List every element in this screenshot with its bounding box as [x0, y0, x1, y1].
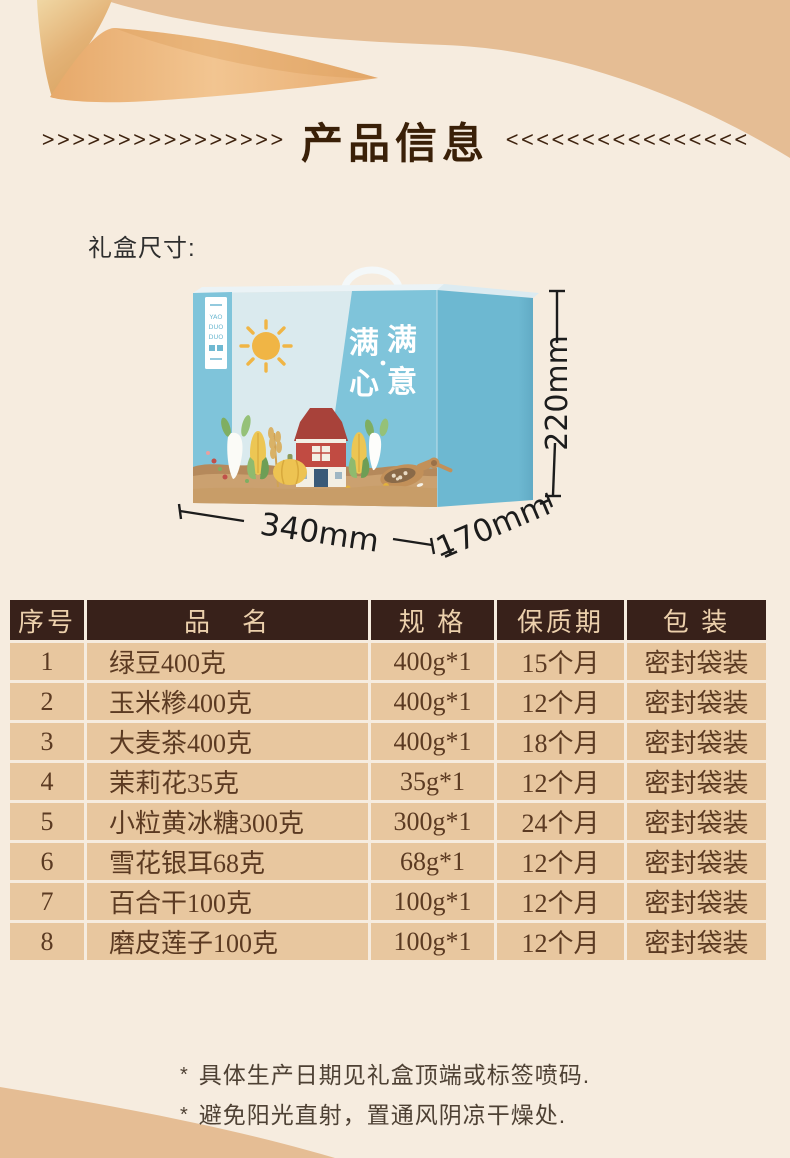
- column-header-no: 序号: [10, 600, 84, 640]
- cell-no: 5: [10, 803, 84, 840]
- cell-packing: 密封袋装: [624, 843, 766, 880]
- table-row: 1 绿豆400克 400g*1 15个月 密封袋装: [10, 643, 766, 680]
- table-header-row: 序号 品 名 规 格 保质期 包 装: [10, 600, 766, 640]
- cell-spec: 68g*1: [368, 843, 494, 880]
- cell-no: 6: [10, 843, 84, 880]
- svg-text:意: 意: [387, 365, 417, 400]
- cell-shelf-life: 12个月: [494, 683, 624, 720]
- product-table: 序号 品 名 规 格 保质期 包 装 1 绿豆400克 400g*1 15个月 …: [10, 597, 766, 963]
- cell-no: 4: [10, 763, 84, 800]
- page-title: 产品信息: [301, 110, 489, 171]
- cell-no: 2: [10, 683, 84, 720]
- svg-text:满: 满: [387, 323, 417, 358]
- cell-name: 玉米糁400克: [84, 683, 368, 720]
- cell-no: 1: [10, 643, 84, 680]
- table-row: 3 大麦茶400克 400g*1 18个月 密封袋装: [10, 723, 766, 760]
- footnote-text: 避免阳光直射，置通风阴凉干燥处.: [199, 1102, 566, 1128]
- cell-name: 百合干100克: [84, 883, 368, 920]
- cell-packing: 密封袋装: [624, 643, 766, 680]
- table-row: 7 百合干100克 100g*1 12个月 密封袋装: [10, 883, 766, 920]
- cell-shelf-life: 24个月: [494, 803, 624, 840]
- cell-spec: 400g*1: [368, 683, 494, 720]
- cell-shelf-life: 12个月: [494, 883, 624, 920]
- cell-shelf-life: 12个月: [494, 923, 624, 960]
- section-title-row: >>>>>>>>>>>>>>>> 产品信息 <<<<<<<<<<<<<<<<: [0, 110, 790, 170]
- cell-spec: 35g*1: [368, 763, 494, 800]
- cell-name: 大麦茶400克: [84, 723, 368, 760]
- column-header-spec: 规 格: [368, 600, 494, 640]
- cell-spec: 100g*1: [368, 883, 494, 920]
- cell-packing: 密封袋装: [624, 923, 766, 960]
- cell-spec: 400g*1: [368, 643, 494, 680]
- footnote-line: *具体生产日期见礼盒顶端或标签喷码.: [180, 1055, 590, 1095]
- dimension-height-label: 220mm: [540, 335, 575, 451]
- asterisk-marker: *: [180, 1055, 189, 1095]
- dimension-line-width: 340mm: [179, 504, 434, 560]
- cell-shelf-life: 15个月: [494, 643, 624, 680]
- brand-strip-label: YAO DUO DUO: [205, 297, 227, 369]
- cell-packing: 密封袋装: [624, 723, 766, 760]
- cell-packing: 密封袋装: [624, 883, 766, 920]
- footnotes: *具体生产日期见礼盒顶端或标签喷码. *避免阳光直射，置通风阴凉干燥处.: [180, 1055, 590, 1135]
- cell-name: 茉莉花35克: [84, 763, 368, 800]
- cell-shelf-life: 18个月: [494, 723, 624, 760]
- table-row: 5 小粒黄冰糖300克 300g*1 24个月 密封袋装: [10, 803, 766, 840]
- right-chevrons-icon: <<<<<<<<<<<<<<<<: [505, 128, 749, 152]
- footnote-line: *避免阳光直射，置通风阴凉干燥处.: [180, 1095, 590, 1135]
- cell-no: 8: [10, 923, 84, 960]
- table-row: 2 玉米糁400克 400g*1 12个月 密封袋装: [10, 683, 766, 720]
- cell-packing: 密封袋装: [624, 763, 766, 800]
- column-header-packing: 包 装: [624, 600, 766, 640]
- cell-spec: 100g*1: [368, 923, 494, 960]
- gift-box-illustration: YAO DUO DUO 满 满 心 意: [150, 255, 620, 585]
- svg-text:DUO: DUO: [209, 323, 224, 331]
- cell-packing: 密封袋装: [624, 803, 766, 840]
- sun-icon: [241, 321, 291, 371]
- dimension-line-height: 220mm: [540, 291, 575, 496]
- cell-name: 小粒黄冰糖300克: [84, 803, 368, 840]
- cell-no: 3: [10, 723, 84, 760]
- cell-name: 磨皮莲子100克: [84, 923, 368, 960]
- cell-name: 雪花银耳68克: [84, 843, 368, 880]
- svg-text:YAO: YAO: [209, 313, 223, 321]
- svg-text:心: 心: [349, 367, 379, 402]
- cell-spec: 400g*1: [368, 723, 494, 760]
- svg-text:满: 满: [349, 326, 379, 361]
- table-row: 6 雪花银耳68克 68g*1 12个月 密封袋装: [10, 843, 766, 880]
- cell-name: 绿豆400克: [84, 643, 368, 680]
- cell-packing: 密封袋装: [624, 683, 766, 720]
- asterisk-marker: *: [180, 1095, 189, 1135]
- table-row: 8 磨皮莲子100克 100g*1 12个月 密封袋装: [10, 923, 766, 960]
- column-header-name: 品 名: [84, 600, 368, 640]
- cell-spec: 300g*1: [368, 803, 494, 840]
- cell-shelf-life: 12个月: [494, 843, 624, 880]
- product-info-page: { "page": { "title": "产品信息", "chevrons_l…: [0, 0, 790, 1158]
- cell-shelf-life: 12个月: [494, 763, 624, 800]
- left-chevrons-icon: >>>>>>>>>>>>>>>>: [41, 128, 285, 152]
- svg-text:DUO: DUO: [209, 333, 224, 341]
- dimension-width-label: 340mm: [258, 506, 382, 559]
- cell-no: 7: [10, 883, 84, 920]
- footnote-text: 具体生产日期见礼盒顶端或标签喷码.: [199, 1062, 590, 1088]
- table-row: 4 茉莉花35克 35g*1 12个月 密封袋装: [10, 763, 766, 800]
- box-side-face: [437, 290, 533, 507]
- column-header-shelf-life: 保质期: [494, 600, 624, 640]
